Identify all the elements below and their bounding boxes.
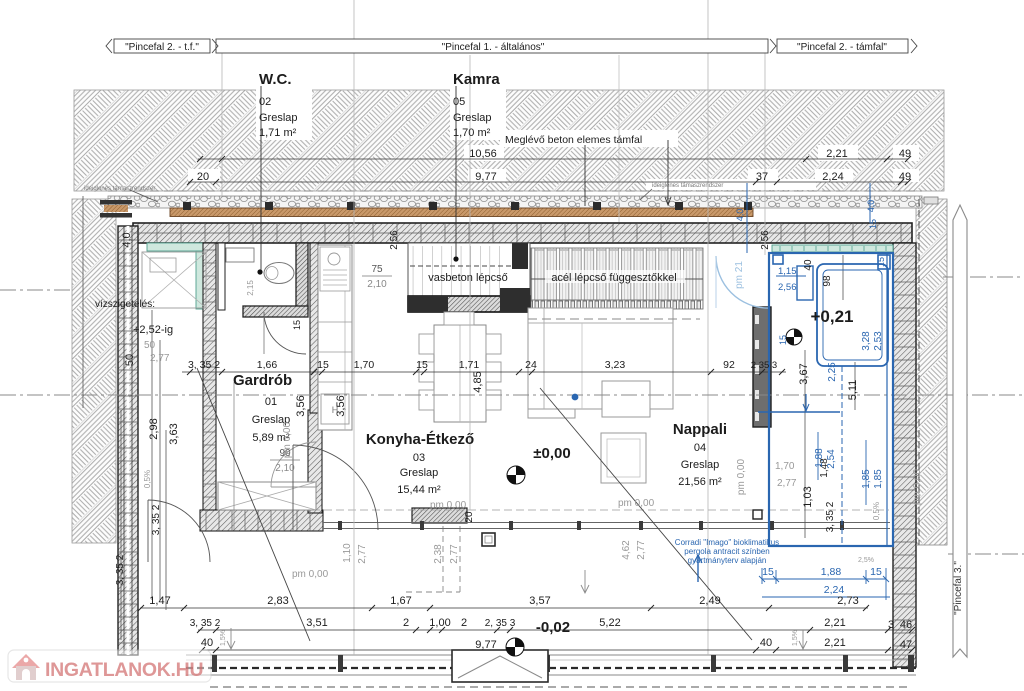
svg-text:2,21: 2,21 (824, 617, 845, 629)
svg-text:Kamra: Kamra (453, 71, 500, 88)
svg-text:2,25: 2,25 (827, 362, 838, 382)
svg-text:2,77: 2,77 (777, 478, 797, 489)
svg-text:4,0: 4,0 (121, 232, 133, 247)
svg-text:2,24: 2,24 (822, 171, 843, 183)
svg-text:1,03: 1,03 (802, 486, 814, 507)
svg-text:Meglévő beton elemes támfal: Meglévő beton elemes támfal (505, 134, 642, 146)
svg-text:49: 49 (899, 171, 911, 183)
svg-text:2,5%: 2,5% (858, 557, 874, 564)
svg-text:Gardrób: Gardrób (233, 372, 292, 389)
svg-text:1,85: 1,85 (861, 469, 872, 489)
svg-text:01: 01 (265, 396, 277, 408)
svg-text:92: 92 (723, 359, 735, 371)
svg-text:15: 15 (762, 566, 774, 578)
svg-text:3, 35 2: 3, 35 2 (190, 618, 221, 629)
svg-text:15: 15 (868, 219, 878, 229)
svg-text:1,67: 1,67 (390, 595, 411, 607)
svg-text:1,15: 1,15 (778, 266, 797, 277)
svg-text:Konyha-Étkező: Konyha-Étkező (366, 431, 474, 448)
svg-text:"Pincefal 2. - t.f.": "Pincefal 2. - t.f." (125, 42, 199, 53)
svg-text:15: 15 (292, 320, 302, 330)
svg-text:2,15: 2,15 (246, 280, 255, 296)
svg-text:2,54: 2,54 (826, 449, 837, 469)
svg-text:20: 20 (197, 171, 209, 183)
svg-text:2,83: 2,83 (267, 595, 288, 607)
svg-text:1,85: 1,85 (873, 469, 884, 489)
svg-text:pm 0,00: pm 0,00 (282, 421, 293, 458)
svg-text:vasbeton lépcső: vasbeton lépcső (428, 272, 508, 284)
svg-text:pm 0,00: pm 0,00 (912, 468, 923, 505)
svg-text:-0,02: -0,02 (536, 619, 570, 636)
svg-text:1,88: 1,88 (814, 448, 825, 468)
svg-text:3, 35 2: 3, 35 2 (115, 554, 126, 585)
svg-text:+0,21: +0,21 (810, 307, 853, 326)
svg-text:3,63: 3,63 (168, 423, 180, 444)
svg-text:15: 15 (416, 359, 428, 371)
svg-text:1,70: 1,70 (354, 359, 375, 371)
svg-text:03: 03 (413, 452, 425, 464)
svg-text:2 35 3: 2 35 3 (751, 360, 777, 371)
svg-text:4,0: 4,0 (735, 209, 745, 222)
svg-text:05: 05 (453, 96, 465, 108)
svg-text:2,98: 2,98 (148, 418, 160, 439)
svg-text:Corradi "Imago" bioklimatikus: Corradi "Imago" bioklimatikus (675, 538, 779, 547)
svg-text:Greslap: Greslap (259, 112, 298, 124)
svg-text:3,57: 3,57 (529, 595, 550, 607)
svg-text:37: 37 (756, 171, 768, 183)
svg-text:50: 50 (124, 354, 136, 366)
svg-text:2,10: 2,10 (275, 463, 295, 474)
svg-text:40: 40 (760, 637, 772, 649)
svg-text:3, 35 2: 3, 35 2 (151, 504, 162, 535)
svg-text:1,00: 1,00 (429, 617, 450, 629)
svg-text:50: 50 (144, 340, 156, 351)
svg-text:2,77: 2,77 (449, 544, 460, 564)
svg-text:±0,00: ±0,00 (533, 445, 570, 462)
svg-text:3,56: 3,56 (295, 395, 307, 416)
svg-text:02: 02 (259, 96, 271, 108)
svg-text:3, 35 2: 3, 35 2 (188, 359, 220, 371)
svg-text:49: 49 (899, 148, 911, 160)
svg-text:20: 20 (464, 511, 475, 523)
svg-text:1,70: 1,70 (775, 461, 795, 472)
svg-text:10,56: 10,56 (469, 148, 497, 160)
svg-text:9,77: 9,77 (475, 171, 496, 183)
svg-text:2,24: 2,24 (824, 584, 845, 596)
svg-text:75: 75 (371, 264, 383, 275)
svg-text:3,28: 3,28 (861, 331, 872, 351)
svg-text:pm 0,00: pm 0,00 (292, 569, 329, 580)
svg-text:3,67: 3,67 (798, 363, 810, 384)
svg-text:24: 24 (525, 359, 537, 371)
svg-text:2,56: 2,56 (778, 282, 797, 293)
svg-text:pm 0,00: pm 0,00 (736, 458, 747, 495)
svg-text:3,56: 3,56 (335, 395, 347, 416)
svg-text:pm 0,00: pm 0,00 (618, 498, 655, 509)
svg-text:1,66: 1,66 (257, 359, 278, 371)
svg-text:98: 98 (822, 275, 833, 287)
svg-text:3: 3 (888, 619, 894, 631)
svg-text:pm 0,00: pm 0,00 (430, 500, 467, 511)
svg-text:acél lépcső függesztőkkel: acél lépcső függesztőkkel (551, 272, 676, 284)
svg-text:21,56 m²: 21,56 m² (678, 476, 722, 488)
svg-text:1,71: 1,71 (459, 359, 480, 371)
svg-text:1,10: 1,10 (342, 543, 353, 563)
svg-text:2: 2 (403, 617, 409, 629)
svg-text:2,53: 2,53 (873, 331, 884, 351)
svg-text:15: 15 (876, 257, 886, 267)
svg-text:pergola antracit színben: pergola antracit színben (684, 547, 769, 556)
svg-text:Nappali: Nappali (673, 421, 727, 438)
svg-text:4,85: 4,85 (472, 371, 484, 392)
svg-text:15: 15 (317, 359, 329, 371)
svg-text:15: 15 (870, 566, 882, 578)
svg-text:2: 2 (461, 617, 467, 629)
svg-text:Greslap: Greslap (453, 112, 492, 124)
svg-text:1,5%: 1,5% (220, 630, 227, 646)
svg-text:15,44 m²: 15,44 m² (397, 484, 441, 496)
svg-text:pm 21: pm 21 (734, 261, 745, 289)
svg-text:2,38: 2,38 (433, 544, 444, 564)
svg-text:1,5%: 1,5% (792, 630, 799, 646)
svg-text:0,5%: 0,5% (143, 470, 152, 488)
svg-text:ideiglenes támaszrendszer: ideiglenes támaszrendszer (84, 186, 155, 192)
svg-text:3,51: 3,51 (306, 617, 327, 629)
svg-text:04: 04 (694, 442, 706, 454)
svg-text:1,71 m²: 1,71 m² (259, 127, 297, 139)
svg-text:40: 40 (803, 259, 814, 271)
svg-text:9,77: 9,77 (475, 639, 496, 651)
svg-text:1,88: 1,88 (821, 566, 842, 578)
svg-text:15: 15 (778, 335, 788, 345)
svg-text:+2,52-ig: +2,52-ig (133, 324, 173, 336)
svg-text:46: 46 (900, 619, 912, 631)
svg-text:4,0: 4,0 (866, 200, 876, 213)
svg-text:5,11: 5,11 (847, 380, 859, 401)
svg-text:"Pincefal 2. - támfal": "Pincefal 2. - támfal" (797, 42, 887, 53)
svg-text:2,77: 2,77 (150, 353, 170, 364)
svg-text:5,22: 5,22 (599, 617, 620, 629)
svg-text:"Pincefal 3.": "Pincefal 3." (953, 561, 964, 615)
svg-text:2 56: 2 56 (760, 230, 771, 250)
svg-text:2,21: 2,21 (826, 148, 847, 160)
svg-text:2,77: 2,77 (636, 540, 647, 560)
svg-text:2,10: 2,10 (367, 279, 387, 290)
svg-text:2,77: 2,77 (357, 544, 368, 564)
svg-text:40: 40 (201, 637, 213, 649)
svg-text:"Pincefal 1. - általános": "Pincefal 1. - általános" (442, 42, 545, 53)
svg-text:1,47: 1,47 (149, 595, 170, 607)
svg-text:INGATLANOK.HU: INGATLANOK.HU (45, 659, 203, 681)
svg-text:4,62: 4,62 (621, 540, 632, 560)
svg-text:Greslap: Greslap (681, 459, 720, 471)
svg-text:vízszigetelés:: vízszigetelés: (95, 299, 155, 310)
svg-text:0,5%: 0,5% (872, 502, 881, 520)
svg-text:gyártmányterv alapján: gyártmányterv alapján (688, 556, 767, 565)
svg-text:2 56: 2 56 (389, 230, 400, 250)
svg-text:1,70 m²: 1,70 m² (453, 127, 491, 139)
svg-text:W.C.: W.C. (259, 71, 292, 88)
svg-text:3,23: 3,23 (605, 359, 626, 371)
svg-text:2, 35 3: 2, 35 3 (485, 618, 516, 629)
svg-text:Greslap: Greslap (400, 467, 439, 479)
svg-text:ideiglenes támaszrendszer: ideiglenes támaszrendszer (652, 183, 723, 189)
svg-text:2,21: 2,21 (824, 637, 845, 649)
svg-text:2,73: 2,73 (837, 595, 858, 607)
svg-text:47: 47 (900, 639, 912, 651)
svg-text:3, 35 2: 3, 35 2 (825, 501, 836, 532)
svg-text:2,49: 2,49 (699, 595, 720, 607)
